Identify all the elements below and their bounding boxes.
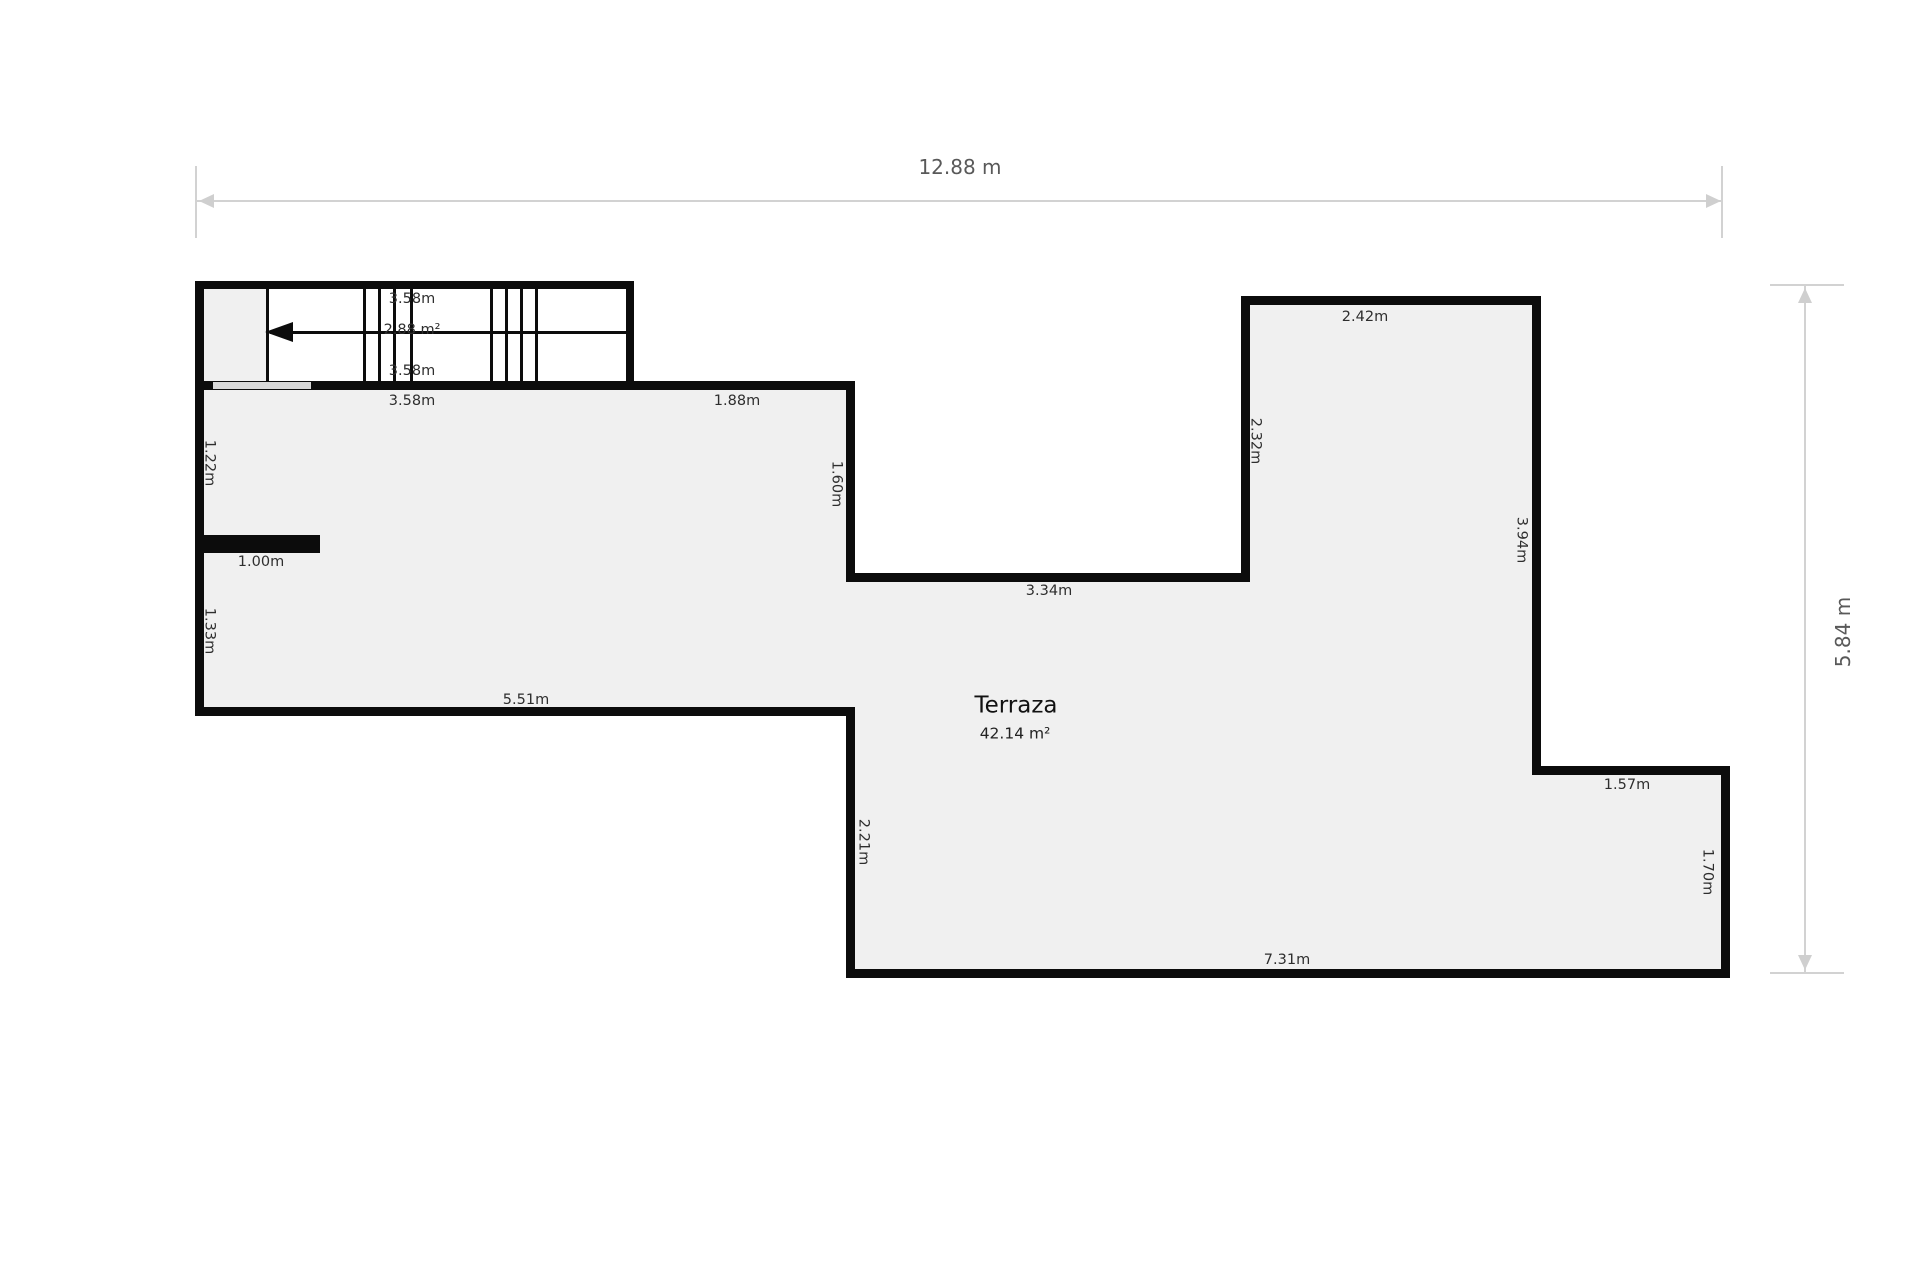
dimension-label: 2.21m (856, 819, 871, 865)
dimension-label: 1.57m (1604, 778, 1650, 793)
dimension-label: 1.33m (202, 608, 217, 654)
dimension-label: 1.00m (238, 555, 284, 570)
dimension-label: 3.58m (389, 394, 435, 409)
dimension-label: 3.58m (389, 364, 435, 379)
staircase-landing (203, 289, 266, 381)
dimension-label: 1.70m (1700, 849, 1715, 895)
dimension-label: 1.60m (829, 461, 844, 507)
stair-tread (378, 289, 381, 381)
dimension-tick-left (195, 166, 197, 238)
dimension-label: 1.88m (714, 394, 760, 409)
stair-tread (363, 289, 366, 381)
wall-notch-bottom (846, 573, 1250, 582)
stair-tread (535, 289, 538, 381)
wall-step-right (1721, 766, 1730, 978)
dimension-tick-bottom (1770, 972, 1844, 974)
wall-leftwing-bottom (195, 707, 855, 716)
dimension-label: 12.88 m (918, 157, 1001, 177)
stair-direction-line (270, 331, 626, 334)
dimension-label: 7.31m (1264, 953, 1310, 968)
dimension-label: 3.94m (1514, 517, 1529, 563)
dimension-tick-top (1770, 284, 1844, 286)
dimension-label: 2.32m (1248, 418, 1263, 464)
stair-tread (490, 289, 493, 381)
dimension-label: 2.42m (1342, 310, 1388, 325)
wall-midleft-vertical (846, 707, 855, 978)
dimension-label: 3.34m (1026, 584, 1072, 599)
door-opening (213, 382, 311, 389)
dimension-label: 3.58m (389, 292, 435, 307)
wall-rightwing-top (1241, 296, 1541, 305)
dimension-label: 5.51m (503, 693, 549, 708)
stair-direction-arrow-icon (265, 322, 293, 342)
dimension-arrow-down-icon (1798, 955, 1812, 970)
dimension-arrow-left-icon (199, 194, 214, 208)
wall-step-top (1532, 766, 1730, 775)
dimension-arrow-right-icon (1706, 194, 1721, 208)
room-name: Terraza (974, 695, 1057, 718)
dimension-line-horizontal (197, 200, 1723, 202)
stair-tread (505, 289, 508, 381)
wall-interior-stub (199, 535, 320, 553)
dimension-tick-right (1721, 166, 1723, 238)
dimension-line-vertical (1804, 285, 1806, 974)
wall-bottom (846, 969, 1730, 978)
floor-plan-canvas: Terraza 42.14 m² 12.88 m5.84 m3.58m2.88 … (0, 0, 1920, 1280)
dimension-arrow-up-icon (1798, 288, 1812, 303)
dimension-label: 1.22m (202, 440, 217, 486)
wall-right (1532, 296, 1541, 775)
wall-notch-left (846, 381, 855, 582)
stair-tread (520, 289, 523, 381)
dimension-label: 5.84 m (1833, 597, 1853, 667)
dimension-label: 2.88 m² (384, 323, 441, 338)
room-area: 42.14 m² (980, 726, 1051, 742)
